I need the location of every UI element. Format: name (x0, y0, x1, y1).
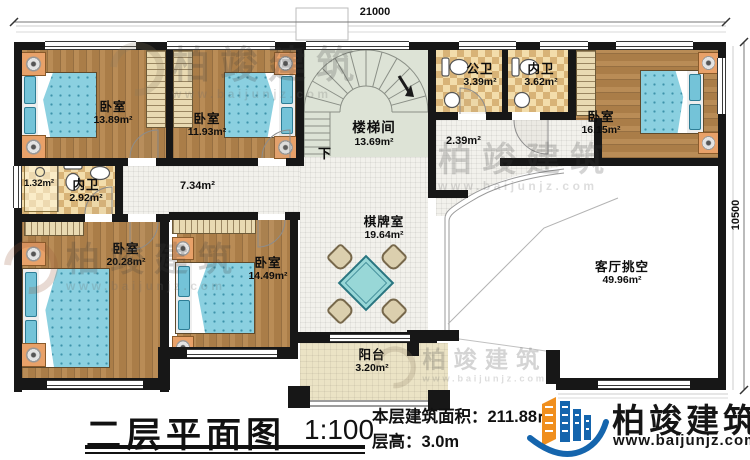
window (187, 349, 277, 358)
title-underline (85, 445, 365, 449)
room-label-bedroom-bottom-left: 卧室20.28m² (106, 242, 145, 268)
window (45, 41, 136, 50)
room-label-stair-hall: 楼梯间13.69m² (352, 120, 396, 148)
room-label-game-room: 棋牌室19.64m² (364, 215, 405, 241)
window (459, 41, 516, 50)
plan-title: 二层平面图 (86, 407, 286, 458)
room-label-bedroom-top-right: 卧室16.15m² (581, 110, 620, 136)
floor-plan-canvas: 卧室13.89m² 卧室11.93m² 卧室16.15m² 卧室20.28m² … (0, 0, 750, 460)
shower-head (36, 168, 45, 177)
label-shower-area: 1.32m² (24, 178, 54, 189)
window (616, 41, 693, 50)
roof-outline-box (296, 8, 348, 40)
label-hallway-area: 7.34m² (180, 180, 215, 192)
brand-website: www.baijunjz.com (613, 432, 750, 449)
brand-logo-icon (526, 392, 610, 458)
label-stair-down: 下 (318, 143, 331, 162)
plan-scale: 1:100 (304, 414, 374, 446)
toilet-tank (442, 58, 449, 76)
balcony-pillar (288, 386, 310, 408)
window (47, 380, 143, 389)
toilet-tank (512, 58, 519, 76)
room-label-bedroom-bottom-mid: 卧室14.49m² (248, 256, 287, 282)
label-hallway-small-area: 2.39m² (446, 135, 481, 147)
window (540, 41, 588, 50)
floor-height-text: 层高：3.0m (372, 428, 459, 452)
room-label-ensuite-left: 内卫2.92m² (69, 178, 102, 204)
window (717, 58, 726, 114)
title-underline-thin (85, 452, 365, 454)
dimension-right: 10500 (730, 185, 742, 245)
window (13, 166, 22, 208)
sink (445, 93, 460, 108)
room-label-ensuite-top: 内卫3.62m² (524, 62, 557, 88)
window (306, 41, 409, 50)
room-label-living-void: 客厅挑空49.96m² (595, 260, 649, 286)
living-void-area (446, 166, 718, 380)
room-label-public-bath: 公卫3.39m² (463, 62, 496, 88)
room-label-balcony: 阳台3.20m² (355, 348, 388, 374)
dimension-top: 21000 (352, 6, 398, 18)
window (330, 334, 410, 342)
window (167, 41, 275, 50)
room-label-bedroom-top-left: 卧室13.89m² (93, 100, 132, 126)
room-label-bedroom-top-mid: 卧室11.93m² (188, 112, 227, 138)
window (598, 380, 690, 389)
sink (515, 93, 530, 108)
